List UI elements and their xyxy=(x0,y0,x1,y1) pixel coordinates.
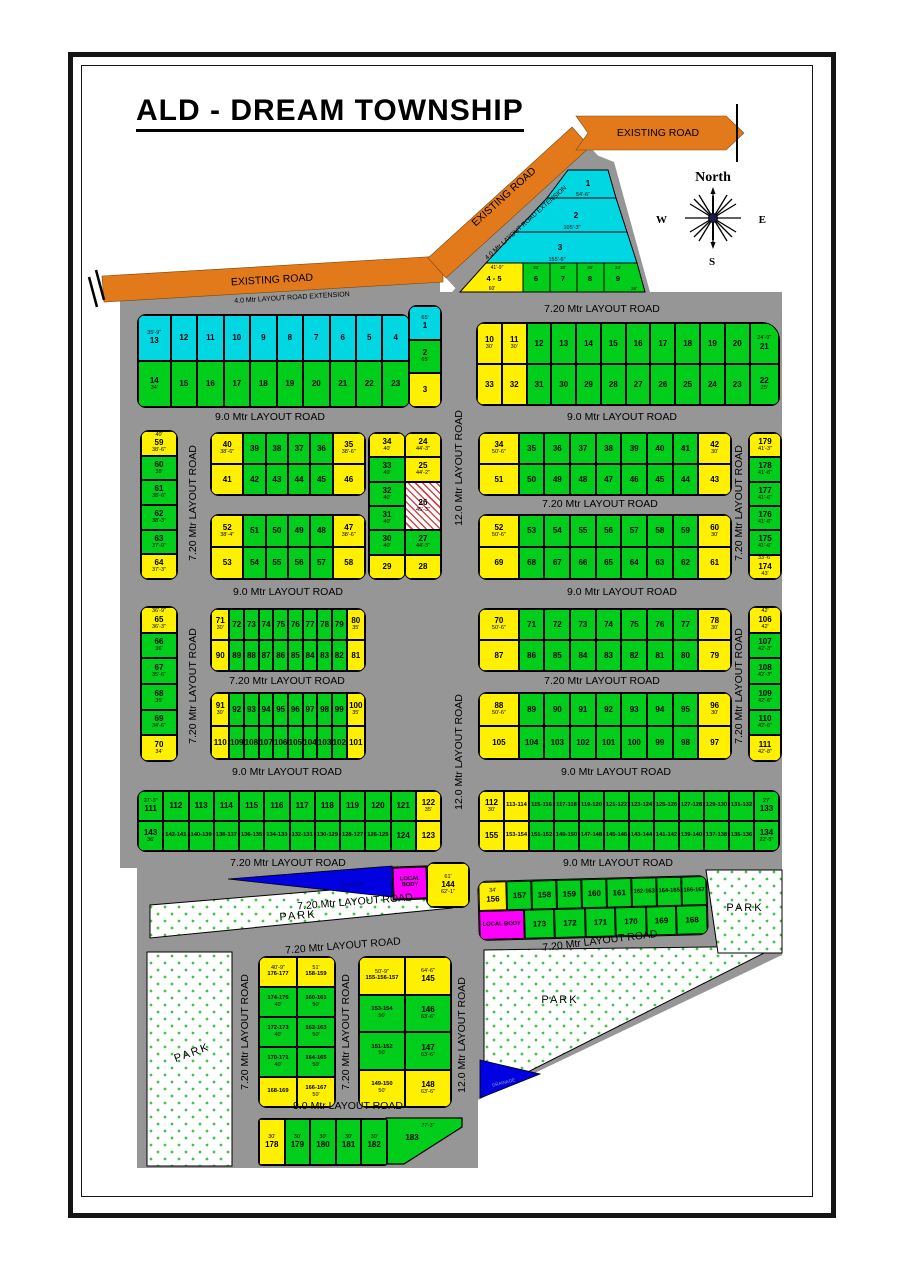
plot-row: 33323130292827262524232225' xyxy=(477,364,779,405)
plot-27: 27 xyxy=(626,364,651,405)
plot-94: 94 xyxy=(647,693,673,726)
block-northeast: 1030'1130'12131415161718192024'-9"213332… xyxy=(476,322,780,406)
block-right-b1: 3450'-6"353637383940414230'5150494847464… xyxy=(478,432,732,496)
plot-143-144: 143-144 xyxy=(629,821,654,851)
plot-row: 3450'-6"353637383940414230' xyxy=(479,433,731,464)
plot-166-167: 166-167 xyxy=(681,876,707,906)
plot-70: 7050'-6" xyxy=(479,609,519,640)
plot-row: 35'-9"13121110987654 xyxy=(138,315,409,361)
plot-24: 2444'-3" xyxy=(405,433,441,457)
road-90-nw-label: 9.0 Mtr LAYOUT ROAD xyxy=(215,411,325,423)
plot-96: 9630' xyxy=(698,693,731,726)
plot-8: 8 xyxy=(277,315,303,361)
plot-46: 46 xyxy=(333,464,365,495)
block-northwest: 35'-9"131211109876541434'151617181920212… xyxy=(137,314,410,408)
plot-134-133: 134-133 xyxy=(264,821,289,851)
plot-99: 99 xyxy=(647,726,673,759)
plot-97: 97 xyxy=(303,693,318,726)
plot-158: 158 xyxy=(532,880,558,910)
plot-168: 168 xyxy=(676,905,707,935)
plot-19: 19 xyxy=(700,323,725,364)
plot-80: 80 xyxy=(673,640,699,671)
plot-173: 173 xyxy=(524,909,555,939)
plot-109: 109 xyxy=(229,726,244,759)
plot-row: 6437'-3" xyxy=(141,554,177,579)
plot-50: 50 xyxy=(266,515,288,547)
plot-88: 8850'-6" xyxy=(479,693,519,726)
plot-65: 36'-9"6536'-3" xyxy=(141,607,177,633)
plot-156: 34'156 xyxy=(478,881,507,911)
plot-row: 5250'-6"535455565758596030' xyxy=(479,515,731,547)
plot-row: 153-15450'14663'-6" xyxy=(359,995,451,1033)
plot-row: 3040' xyxy=(369,530,405,554)
plot-155: 155 xyxy=(479,821,504,851)
compass-east-label: E xyxy=(759,214,766,226)
plot-row: 878685848382818079 xyxy=(479,640,731,671)
plot-80: 8035' xyxy=(347,609,365,640)
plot-37: 37 xyxy=(288,433,310,464)
plot-57: 57 xyxy=(310,547,332,579)
plot-22: 2225' xyxy=(750,364,779,405)
road-720-ne-label: 7.20 Mtr LAYOUT ROAD xyxy=(544,303,660,315)
plot-64: 6437'-3" xyxy=(141,554,177,579)
plot-84: 84 xyxy=(570,640,596,671)
plot-64: 64 xyxy=(621,547,647,579)
plot-140-139: 140-139 xyxy=(189,821,214,851)
plot-row: 110109108107106105104103102101 xyxy=(211,726,365,759)
plot-134: 13422'-5" xyxy=(754,821,779,851)
plot-34: 3440' xyxy=(369,433,405,457)
plot-35: 35 xyxy=(519,433,545,464)
plot-60: 6030' xyxy=(698,515,731,547)
road-90-l4-label: 9.0 Mtr LAYOUT ROAD xyxy=(232,766,342,778)
plot-79: 79 xyxy=(332,609,347,640)
plot-56: 56 xyxy=(596,515,622,547)
plot-126-125: 126-125 xyxy=(365,821,390,851)
plot-164-165: 164-165 xyxy=(656,877,682,907)
plot-row: 3340' xyxy=(369,457,405,481)
block-left-a2: 5238'-4"515049484738'-6"535455565758 xyxy=(210,514,366,580)
road-720-vbottom1-label: 7.20 Mtr LAYOUT ROAD xyxy=(239,974,251,1090)
plot-180: 30'180 xyxy=(310,1119,336,1165)
plot-row: 7130'72737475767778798035' xyxy=(211,609,365,640)
plot-94: 94 xyxy=(259,693,274,726)
plot-160-161: 160-16150' xyxy=(297,987,335,1017)
plot-161: 161 xyxy=(606,878,632,908)
compass-star-icon xyxy=(682,187,744,249)
plot-103: 103 xyxy=(317,726,332,759)
plot-179: 17941'-3" xyxy=(749,433,781,457)
plot-36: 36 xyxy=(544,433,570,464)
plot-170-171: 170-17140' xyxy=(259,1047,297,1077)
plot-row: 11230'113-114115-116117-118119-120121-12… xyxy=(479,791,779,821)
compass-rose: North W E S xyxy=(668,170,758,274)
plot-75: 75 xyxy=(273,609,288,640)
plot-63: 6337'-9" xyxy=(141,530,177,555)
plot-59: 59 xyxy=(673,515,699,547)
block-left-c2: 9130'929394959697989910035'1101091081071… xyxy=(210,692,366,760)
plot-168-169: 168-169 xyxy=(259,1077,297,1107)
block-right-c2: 8850'-6"899091929394959630'1051041031021… xyxy=(478,692,732,760)
plot-176-177: 40'-9"176-177 xyxy=(259,957,297,987)
plot-120: 120 xyxy=(365,791,390,821)
plot-147-148: 147-148 xyxy=(579,821,604,851)
plot-13: 13 xyxy=(551,323,576,364)
plot-139-140: 139-140 xyxy=(679,821,704,851)
plot-25: 2544'-2" xyxy=(405,457,441,481)
plot-53: 53 xyxy=(519,515,545,547)
plot-33: 3340' xyxy=(369,457,405,481)
plot-113-114: 113-114 xyxy=(504,791,529,821)
plot-73: 73 xyxy=(570,609,596,640)
plot-29: 29 xyxy=(576,364,601,405)
plot-5: 5 xyxy=(356,315,382,361)
plot-93: 93 xyxy=(621,693,647,726)
plot-121-122: 121-122 xyxy=(604,791,629,821)
plot-73: 73 xyxy=(244,609,259,640)
plot-132-131: 132-131 xyxy=(290,821,315,851)
plot-47: 47 xyxy=(596,464,622,495)
plot-15: 15 xyxy=(601,323,626,364)
plot-86: 86 xyxy=(273,640,288,671)
road-720-vleft1-label: 7.20 Mtr LAYOUT ROAD xyxy=(187,445,199,561)
plot-row: 170-17140'164-16550' xyxy=(259,1047,335,1077)
plot-105: 105 xyxy=(479,726,519,759)
plot-124: 124 xyxy=(391,821,416,851)
plot-178: 30'178 xyxy=(259,1119,285,1165)
plot-77: 77 xyxy=(303,609,318,640)
plot-177: 17741'-6" xyxy=(749,482,781,506)
plot-30: 30 xyxy=(551,364,576,405)
plot-125-126: 125-126 xyxy=(654,791,679,821)
plot-181: 30'181 xyxy=(336,1119,362,1165)
plot-11: 11 xyxy=(197,315,223,361)
plot-85: 85 xyxy=(288,640,303,671)
plot-row: 36'-9"6536'-3" xyxy=(141,607,177,633)
plot-119-120: 119-120 xyxy=(579,791,604,821)
plot-row: 3440' xyxy=(369,433,405,457)
plot-110: 110 xyxy=(211,726,229,759)
plot-131-132: 131-132 xyxy=(729,791,754,821)
plot-137-138: 137-138 xyxy=(704,821,729,851)
plot-32: 32 xyxy=(502,364,527,405)
plot-159: 159 xyxy=(557,879,583,909)
plot-70: 7034' xyxy=(141,735,177,761)
plot-33: 33 xyxy=(477,364,502,405)
plot-13: 35'-9"13 xyxy=(138,315,171,361)
plot-row: 515049484746454443 xyxy=(479,464,731,495)
plot-7: 7 xyxy=(303,315,329,361)
plot-local-body: LOCAL BODY xyxy=(479,910,525,940)
plot-row: 6138'-6" xyxy=(141,480,177,505)
plot-row: 2645'-3" xyxy=(405,482,441,531)
road-90-l2-label: 9.0 Mtr LAYOUT ROAD xyxy=(233,586,343,598)
plot-172: 172 xyxy=(554,908,585,938)
plot-21: 24'-9"21 xyxy=(750,323,779,364)
plot-62: 6238'-3" xyxy=(141,505,177,530)
plot-row: 3140' xyxy=(369,506,405,530)
road-720-l5-label: 7.20 Mtr LAYOUT ROAD xyxy=(230,857,346,869)
road-90-r5-label: 9.0 Mtr LAYOUT ROAD xyxy=(563,857,673,869)
plot-22: 22 xyxy=(356,361,382,407)
plot-104: 104 xyxy=(303,726,318,759)
plot-61: 61 xyxy=(698,547,731,579)
plot-row: 5238'-4"515049484738'-6" xyxy=(211,515,365,547)
block-left-c1: 7130'72737475767778798035'90898887868584… xyxy=(210,608,366,672)
plot-138-137: 138-137 xyxy=(214,821,239,851)
plot-102: 102 xyxy=(332,726,347,759)
plot-23: 23 xyxy=(382,361,408,407)
block-left-a1: 4038'-6"393837363538'-6"414243444546 xyxy=(210,432,366,496)
block-left-column-59-64: 40'5938'-6"6038'6138'-6"6238'-3"6337'-9"… xyxy=(140,430,178,580)
plot-87: 87 xyxy=(479,640,519,671)
plot-11: 1130' xyxy=(502,323,527,364)
plot-111: 27'-3"111 xyxy=(138,791,163,821)
plot-row: 17941'-3" xyxy=(749,433,781,457)
plot-32: 3240' xyxy=(369,482,405,506)
plot-37: 37 xyxy=(570,433,596,464)
plot-24: 24 xyxy=(700,364,725,405)
plot-103: 103 xyxy=(544,726,570,759)
road-120-upper-label: 12.0 Mtr LAYOUT ROAD xyxy=(453,410,465,526)
plot-54: 54 xyxy=(243,547,265,579)
plot-row: 17641'-6" xyxy=(749,506,781,530)
plot-84: 84 xyxy=(303,640,318,671)
plot-141-142: 141-142 xyxy=(654,821,679,851)
plot-68: 68 xyxy=(519,547,545,579)
plot-row: 90898887868584838281 xyxy=(211,640,365,671)
plot-55: 55 xyxy=(570,515,596,547)
plot-146: 14663'-6" xyxy=(405,995,451,1033)
plot-118: 118 xyxy=(315,791,340,821)
plot-35: 3538'-6" xyxy=(333,433,365,464)
plot-row: 28 xyxy=(405,555,441,579)
plot-44: 44 xyxy=(673,464,699,495)
plot-76: 76 xyxy=(647,609,673,640)
plot-143: 14336' xyxy=(138,821,163,851)
plot-row: 174-17540'160-16150' xyxy=(259,987,335,1017)
plot-92: 92 xyxy=(229,693,244,726)
plot-49: 49 xyxy=(544,464,570,495)
plot-38: 38 xyxy=(596,433,622,464)
road-120-lower-label: 12.0 Mtr LAYOUT ROAD xyxy=(456,977,468,1093)
plot-row: 2544'-2" xyxy=(405,457,441,481)
plot-81: 81 xyxy=(347,640,365,671)
plot-136-135: 136-135 xyxy=(239,821,264,851)
plot-row: 42'10642' xyxy=(749,607,781,633)
plot-153-154: 153-154 xyxy=(504,821,529,851)
block-northwest-endcol: 65'1265'3 xyxy=(408,305,442,408)
page-title: ALD - DREAM TOWNSHIP xyxy=(136,94,524,132)
plot-25: 25 xyxy=(675,364,700,405)
plot-26: 26 xyxy=(650,364,675,405)
plot-69: 6934'-6" xyxy=(141,710,177,736)
plot-row: 6038' xyxy=(141,456,177,481)
plot-6: 6 xyxy=(330,315,356,361)
plot-46: 46 xyxy=(621,464,647,495)
plot-117-118: 117-118 xyxy=(554,791,579,821)
compass-north-label: North xyxy=(668,170,758,186)
plot-60: 6038' xyxy=(141,456,177,481)
plot-23: 23 xyxy=(725,364,750,405)
plot-2: 265' xyxy=(409,340,441,374)
plot-row: 17741'-6" xyxy=(749,482,781,506)
plot-96: 96 xyxy=(288,693,303,726)
plot-54: 54 xyxy=(544,515,570,547)
plot-72: 72 xyxy=(229,609,244,640)
plot-53: 53 xyxy=(211,547,243,579)
road-90-r4-label: 9.0 Mtr LAYOUT ROAD xyxy=(561,766,671,778)
plot-10: 1030' xyxy=(477,323,502,364)
plot-43: 43 xyxy=(266,464,288,495)
plot-34: 3450'-6" xyxy=(479,433,519,464)
plot-row: 6934'-6" xyxy=(141,710,177,736)
plot-130-129: 130-129 xyxy=(315,821,340,851)
plot-row: 50'-9"155-156-15764'-6"145 xyxy=(359,957,451,995)
plot-145-146: 145-146 xyxy=(604,821,629,851)
block-156-173: 34'156157158159160161162-163164-165166-1… xyxy=(477,875,708,941)
plot-67: 6735'-6" xyxy=(141,658,177,684)
plot-18: 18 xyxy=(675,323,700,364)
plot-65: 65 xyxy=(596,547,622,579)
plot-89: 89 xyxy=(229,640,244,671)
plot-174-175: 174-17540' xyxy=(259,987,297,1017)
plot-row: 10842'-3" xyxy=(749,658,781,684)
plot-14: 1434' xyxy=(138,361,171,407)
plot-78: 7830' xyxy=(698,609,731,640)
plot-110: 11042'-6" xyxy=(749,710,781,736)
plot-111: 11142'-8" xyxy=(749,735,781,761)
plot-175: 17541'-6" xyxy=(749,530,781,554)
plot-21: 21 xyxy=(330,361,356,407)
park-right-large-label: PARK xyxy=(541,994,578,1006)
road-720-vright2-label: 7.20 Mtr LAYOUT ROAD xyxy=(733,628,745,744)
plot-row: 27'-3"1111121131141151161171181191201211… xyxy=(138,791,441,821)
plot-row: 7034' xyxy=(141,735,177,761)
plot-row: 65'1 xyxy=(409,306,441,340)
plot-58: 58 xyxy=(647,515,673,547)
plot-162-163: 162-16350' xyxy=(297,1017,335,1047)
plot-122: 12235' xyxy=(416,791,441,821)
plot-12: 12 xyxy=(527,323,552,364)
plot-90: 90 xyxy=(211,640,229,671)
plot-92: 92 xyxy=(596,693,622,726)
plot-81: 81 xyxy=(647,640,673,671)
plot-row: 9130'929394959697989910035' xyxy=(211,693,365,726)
plot-row: 17541'-6" xyxy=(749,530,781,554)
plot-19: 19 xyxy=(277,361,303,407)
plot-1: 65'1 xyxy=(409,306,441,340)
plot-42: 42 xyxy=(243,464,265,495)
plot-row: 10742'-3" xyxy=(749,633,781,659)
plot-93: 93 xyxy=(244,693,259,726)
plot-91: 9130' xyxy=(211,693,229,726)
plot-127-128: 127-128 xyxy=(679,791,704,821)
plot-66: 6636' xyxy=(141,633,177,659)
plot-row: 33'-6"17443' xyxy=(749,555,781,579)
plot-155-156-157: 50'-9"155-156-157 xyxy=(359,957,405,995)
block-bottom-e: 40'-9"176-17751'158-159174-17540'160-161… xyxy=(258,956,336,1108)
plot-100: 100 xyxy=(621,726,647,759)
plot-3: 3 xyxy=(409,373,441,407)
plot-49: 49 xyxy=(288,515,310,547)
plot-162-163: 162-163 xyxy=(631,877,657,907)
plot-row: 6835' xyxy=(141,684,177,710)
plot-51: 51 xyxy=(479,464,519,495)
plot-17: 17 xyxy=(224,361,250,407)
plot-99: 99 xyxy=(332,693,347,726)
plot-108: 10842'-3" xyxy=(749,658,781,684)
plot-149-150: 149-150 xyxy=(554,821,579,851)
plot-97: 97 xyxy=(698,726,731,759)
plot-106: 106 xyxy=(273,726,288,759)
plot-10: 10 xyxy=(224,315,250,361)
plot-153-154: 153-15450' xyxy=(359,995,405,1033)
township-plan-page: { "title": "ALD - DREAM TOWNSHIP", "comp… xyxy=(0,0,904,1280)
plot-123: 123 xyxy=(416,821,441,851)
plot-row: 414243444546 xyxy=(211,464,365,495)
plot-78: 78 xyxy=(317,609,332,640)
road-120-mid-label: 12.0 Mtr LAYOUT ROAD xyxy=(453,694,465,810)
plot-47: 4738'-6" xyxy=(333,515,365,547)
plot-row: 30'17830'17930'18030'18130'182 xyxy=(259,1119,387,1165)
plot-147: 14763'-6" xyxy=(405,1032,451,1070)
block-mini-34-29: 3440'3340'3240'3140'3040'29 xyxy=(368,432,406,580)
plot-101: 101 xyxy=(347,726,365,759)
plot-40: 4038'-6" xyxy=(211,433,243,464)
plot-95: 95 xyxy=(273,693,288,726)
plot-45: 45 xyxy=(647,464,673,495)
road-720-vright1-label: 7.20 Mtr LAYOUT ROAD xyxy=(733,445,745,561)
plot-row: 7050'-6"717273747576777830' xyxy=(479,609,731,640)
plot-62: 62 xyxy=(673,547,699,579)
plot-128-127: 128-127 xyxy=(340,821,365,851)
plot-41: 41 xyxy=(673,433,699,464)
plot-row: 17841'-6" xyxy=(749,457,781,481)
plot-row: 151-15250'14763'-6" xyxy=(359,1032,451,1070)
plot-112: 11230' xyxy=(479,791,504,821)
plot-74: 74 xyxy=(259,609,274,640)
plot-18: 18 xyxy=(250,361,276,407)
plot-157: 157 xyxy=(507,881,533,911)
plot-66: 66 xyxy=(570,547,596,579)
plot-row: 1030'1130'12131415161718192024'-9"21 xyxy=(477,323,779,364)
plot-63: 63 xyxy=(647,547,673,579)
plot-12: 12 xyxy=(171,315,197,361)
plot-83: 83 xyxy=(317,640,332,671)
plot-20: 20 xyxy=(725,323,750,364)
plot-91: 91 xyxy=(570,693,596,726)
plot-68: 6835' xyxy=(141,684,177,710)
plot-114: 114 xyxy=(214,791,239,821)
plot-86: 86 xyxy=(519,640,545,671)
plot-43: 43 xyxy=(698,464,731,495)
block-right-column-106-111: 42'10642'10742'-3"10842'-3"10942'-6"1104… xyxy=(748,606,782,762)
plot-16: 16 xyxy=(626,323,651,364)
block-mini-24-28: 2444'-3"2544'-2"2645'-3"2744'-3"28 xyxy=(404,432,442,580)
plot-row: 6337'-9" xyxy=(141,530,177,555)
plot-4: 4 xyxy=(382,315,408,361)
plot-72: 72 xyxy=(544,609,570,640)
plot-20: 20 xyxy=(303,361,329,407)
plot-74: 74 xyxy=(596,609,622,640)
block-right-c1: 7050'-6"717273747576777830'8786858483828… xyxy=(478,608,732,672)
plot-48: 48 xyxy=(310,515,332,547)
plot-row: 696867666564636261 xyxy=(479,547,731,579)
plot-31: 3140' xyxy=(369,506,405,530)
plot-151-152: 151-152 xyxy=(529,821,554,851)
plot-178: 17841'-6" xyxy=(749,457,781,481)
